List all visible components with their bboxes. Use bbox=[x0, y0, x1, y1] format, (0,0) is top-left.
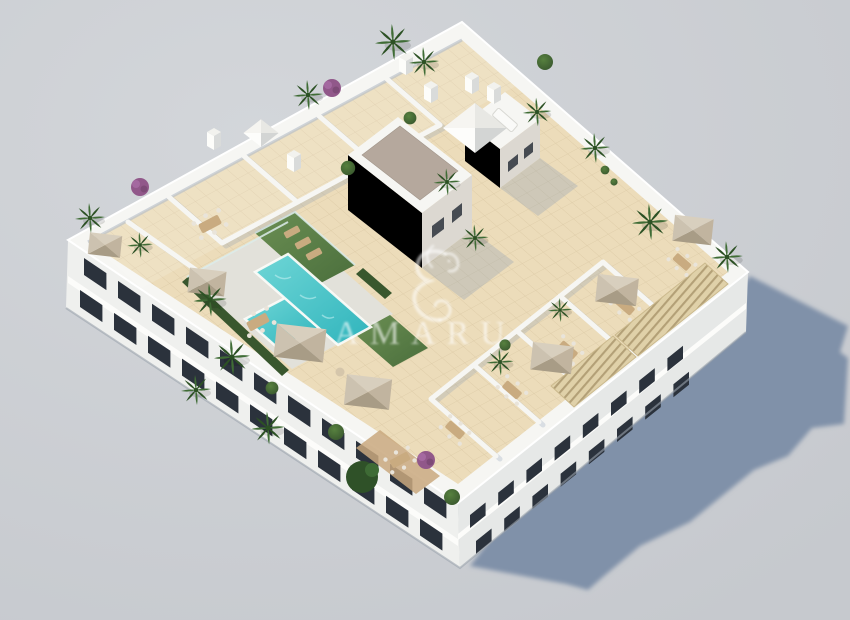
bush bbox=[404, 112, 417, 125]
parasol bbox=[274, 323, 327, 362]
potted-plant bbox=[610, 178, 617, 185]
parasol bbox=[344, 374, 392, 410]
bougainvillea bbox=[417, 451, 435, 469]
bush bbox=[444, 489, 460, 505]
chimney-stack bbox=[207, 128, 221, 150]
parasol bbox=[187, 268, 226, 297]
chimney-stack bbox=[465, 72, 479, 94]
bush bbox=[266, 382, 279, 395]
render-canvas: AMARU bbox=[0, 0, 850, 620]
ottoman bbox=[336, 368, 345, 377]
bush bbox=[328, 424, 344, 440]
parasol bbox=[88, 232, 123, 258]
chimney-stack bbox=[424, 81, 438, 103]
seahorse-eye bbox=[448, 260, 451, 263]
parasol bbox=[530, 342, 574, 374]
bush bbox=[341, 161, 355, 175]
bush bbox=[537, 54, 553, 70]
parasol bbox=[672, 215, 713, 246]
bougainvillea bbox=[131, 178, 149, 196]
watermark-text: AMARU bbox=[334, 315, 516, 352]
bougainvillea bbox=[323, 79, 341, 97]
chimney-stack bbox=[287, 150, 301, 172]
chimney-stack bbox=[487, 82, 501, 104]
aerial-render: AMARU bbox=[0, 0, 850, 620]
parasol bbox=[595, 274, 639, 306]
tree-canopy-highlight bbox=[365, 463, 379, 477]
chimney-stack bbox=[399, 53, 413, 75]
potted-plant bbox=[601, 166, 610, 175]
